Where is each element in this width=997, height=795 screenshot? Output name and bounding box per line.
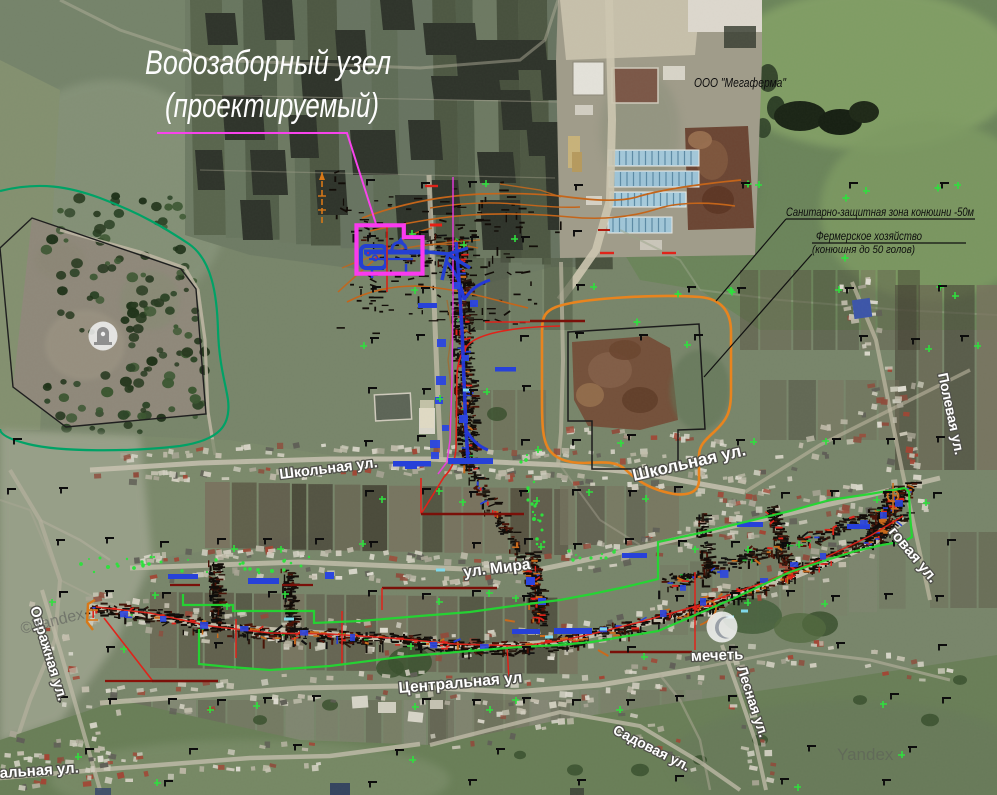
svg-text:ООО "Мегаферма": ООО "Мегаферма" <box>694 75 787 90</box>
svg-text:Yandex: Yandex <box>837 745 894 764</box>
svg-text:Санитарно-защитная зона конюшн: Санитарно-защитная зона конюшни -50м <box>786 207 974 219</box>
svg-text:(проектируемый): (проектируемый) <box>165 87 379 125</box>
svg-text:мечеть: мечеть <box>691 646 744 665</box>
svg-text:Водозаборный узел: Водозаборный узел <box>145 44 391 82</box>
svg-text:Фермерское хозяйство: Фермерское хозяйство <box>816 231 922 243</box>
svg-text:(конюшня до 50 голов): (конюшня до 50 голов) <box>812 244 915 256</box>
